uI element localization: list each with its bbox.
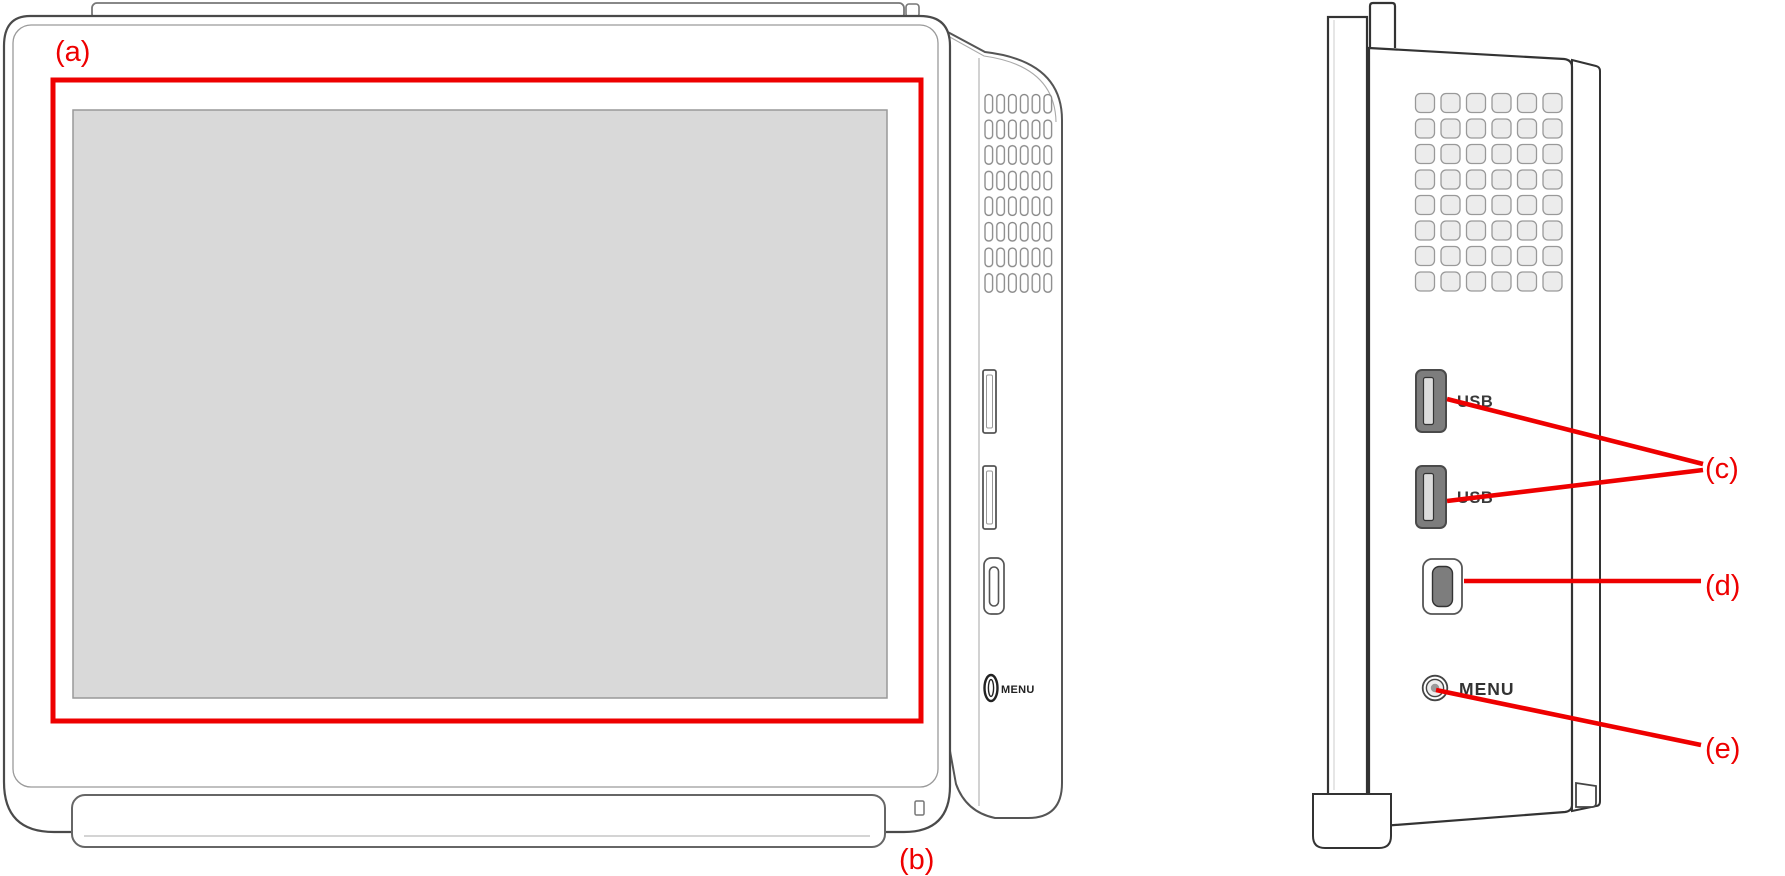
vent-grid-front bbox=[984, 92, 1055, 297]
usb-port-bottom bbox=[1416, 466, 1446, 528]
callout-d: (d) bbox=[1705, 570, 1740, 602]
side-rear-foot bbox=[1576, 783, 1596, 807]
indicator-window bbox=[915, 801, 924, 815]
callout-e: (e) bbox=[1705, 733, 1740, 765]
side-top-tab bbox=[1370, 3, 1395, 48]
usb-slot-bottom-front bbox=[983, 466, 996, 529]
av-port-side bbox=[1423, 559, 1462, 614]
callout-a: (a) bbox=[55, 36, 90, 68]
menu-label-front: MENU bbox=[1001, 684, 1035, 696]
menu-button-front bbox=[985, 675, 998, 701]
menu-button-side bbox=[1423, 676, 1448, 701]
callout-b: (b) bbox=[899, 844, 934, 876]
diagram-canvas: MENU USB bbox=[0, 0, 1785, 876]
callout-c: (c) bbox=[1705, 453, 1739, 485]
av-port-front bbox=[984, 558, 1004, 614]
usb-port-top bbox=[1416, 370, 1446, 432]
bottom-bar bbox=[72, 795, 885, 847]
usb-slot-top-front bbox=[983, 370, 996, 433]
vent-grid-side bbox=[1414, 92, 1566, 296]
screen bbox=[73, 110, 887, 698]
side-front-foot bbox=[1313, 794, 1391, 848]
